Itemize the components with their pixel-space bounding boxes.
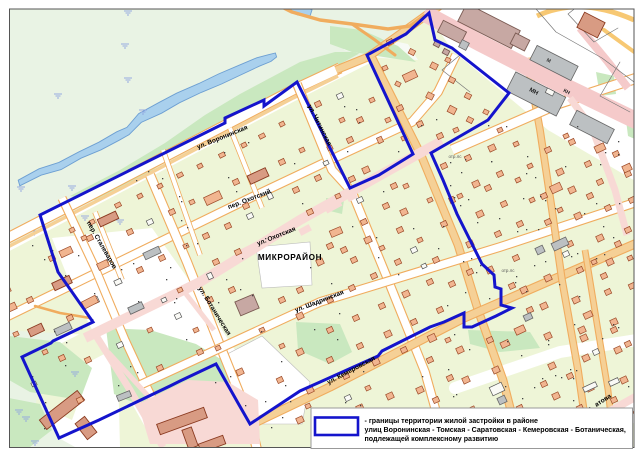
svg-text:- границы территории жилой зас: - границы территории жилой застройки в р… bbox=[365, 417, 539, 425]
svg-text:улиц Воронинская - Томская - С: улиц Воронинская - Томская - Саратовская… bbox=[365, 426, 626, 434]
svg-text:подлежащей комплексному развит: подлежащей комплексному развитию bbox=[365, 435, 499, 443]
svg-text:отр.лс: отр.лс bbox=[448, 154, 462, 159]
svg-text:МИКРОРАЙОН: МИКРОРАЙОН bbox=[258, 251, 322, 262]
svg-text:отр.лс: отр.лс bbox=[501, 268, 515, 273]
